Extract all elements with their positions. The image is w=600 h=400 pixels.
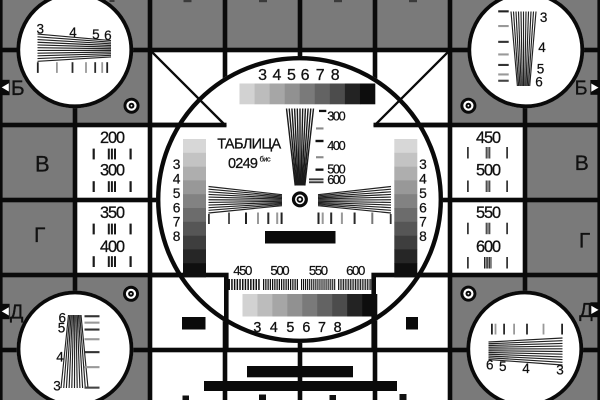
svg-text:3: 3 bbox=[253, 320, 261, 336]
svg-text:3: 3 bbox=[556, 363, 564, 378]
svg-text:6: 6 bbox=[104, 28, 112, 43]
svg-text:0249: 0249 bbox=[228, 156, 258, 172]
svg-text:7: 7 bbox=[318, 320, 326, 336]
svg-text:8: 8 bbox=[173, 229, 181, 244]
svg-text:6: 6 bbox=[535, 75, 543, 90]
svg-text:8: 8 bbox=[331, 67, 340, 84]
svg-text:6: 6 bbox=[302, 320, 310, 336]
svg-text:Д: Д bbox=[579, 300, 593, 322]
svg-text:6: 6 bbox=[301, 67, 310, 84]
svg-text:4: 4 bbox=[173, 171, 181, 186]
svg-text:7: 7 bbox=[173, 214, 181, 229]
svg-text:5: 5 bbox=[173, 186, 181, 201]
svg-text:3: 3 bbox=[173, 157, 181, 172]
svg-text:4: 4 bbox=[522, 361, 530, 376]
svg-text:350: 350 bbox=[100, 204, 125, 222]
svg-text:4: 4 bbox=[56, 350, 64, 365]
svg-text:7: 7 bbox=[419, 214, 427, 229]
svg-text:5: 5 bbox=[419, 186, 427, 201]
svg-text:5: 5 bbox=[92, 27, 100, 42]
svg-text:300: 300 bbox=[327, 109, 346, 123]
svg-text:3: 3 bbox=[540, 10, 548, 25]
svg-text:3: 3 bbox=[258, 67, 267, 84]
svg-text:400: 400 bbox=[100, 238, 125, 256]
svg-text:5: 5 bbox=[499, 359, 507, 374]
svg-text:В: В bbox=[575, 152, 589, 175]
svg-text:Б: Б bbox=[11, 77, 25, 100]
svg-text:450: 450 bbox=[476, 129, 501, 147]
svg-text:600: 600 bbox=[346, 263, 365, 278]
svg-text:6: 6 bbox=[419, 200, 427, 215]
svg-text:Д: Д bbox=[10, 302, 24, 324]
svg-text:бис: бис bbox=[260, 154, 271, 163]
svg-text:4: 4 bbox=[272, 67, 281, 84]
svg-text:Б: Б bbox=[574, 77, 587, 99]
svg-text:Г: Г bbox=[579, 229, 590, 252]
svg-text:5: 5 bbox=[286, 320, 294, 336]
svg-text:300: 300 bbox=[100, 161, 125, 179]
svg-text:200: 200 bbox=[100, 129, 125, 147]
svg-text:7: 7 bbox=[316, 67, 325, 84]
svg-text:500: 500 bbox=[270, 263, 289, 278]
svg-text:4: 4 bbox=[69, 25, 77, 40]
svg-text:Г: Г bbox=[34, 224, 45, 247]
svg-text:4: 4 bbox=[419, 171, 427, 186]
svg-text:450: 450 bbox=[233, 263, 252, 278]
svg-text:6: 6 bbox=[486, 357, 494, 372]
svg-text:3: 3 bbox=[53, 379, 61, 394]
svg-text:8: 8 bbox=[419, 229, 427, 244]
svg-text:550: 550 bbox=[309, 263, 328, 278]
svg-text:4: 4 bbox=[270, 320, 278, 336]
svg-text:5: 5 bbox=[58, 321, 66, 336]
svg-text:3: 3 bbox=[419, 157, 427, 172]
svg-text:400: 400 bbox=[327, 139, 346, 153]
svg-text:600: 600 bbox=[476, 238, 501, 256]
svg-text:8: 8 bbox=[334, 320, 342, 336]
svg-text:3: 3 bbox=[36, 22, 44, 37]
svg-text:500: 500 bbox=[476, 161, 501, 179]
svg-text:6: 6 bbox=[173, 200, 181, 215]
svg-text:5: 5 bbox=[287, 67, 296, 84]
svg-text:550: 550 bbox=[476, 204, 501, 222]
svg-text:600: 600 bbox=[327, 173, 346, 187]
svg-text:4: 4 bbox=[538, 40, 546, 55]
svg-text:ТАБЛИЦА: ТАБЛИЦА bbox=[217, 137, 281, 153]
svg-text:В: В bbox=[35, 152, 50, 177]
